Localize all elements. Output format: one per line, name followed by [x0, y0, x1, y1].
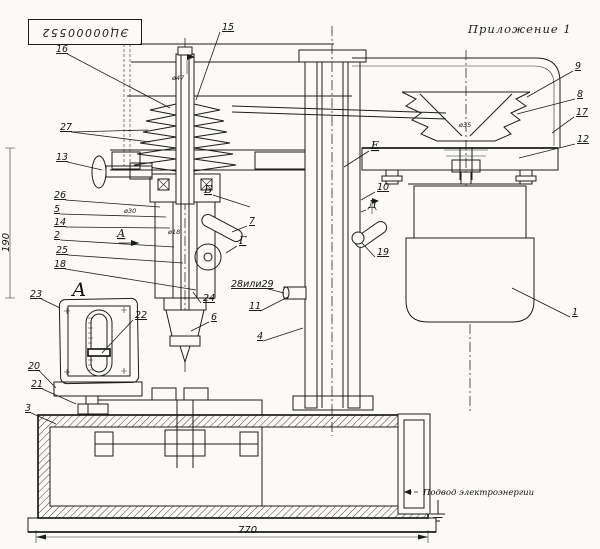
callout-28или29: 28или29: [231, 279, 284, 293]
svg-text:1: 1: [572, 307, 578, 318]
svg-text:26: 26: [54, 190, 66, 201]
svg-text:А: А: [70, 279, 86, 301]
svg-text:14: 14: [54, 217, 66, 228]
callout-14: 14: [54, 217, 170, 228]
callout-16: 16: [56, 44, 170, 108]
motor-shaft: [461, 172, 471, 184]
column-wall-left: [305, 62, 317, 408]
chuck-collar: [170, 336, 200, 346]
small-dimensions: ø47ø30ø18ø35: [123, 74, 471, 236]
svg-text:22: 22: [135, 310, 147, 321]
callout-2: 2: [54, 230, 174, 247]
callout-11: 11: [249, 297, 288, 312]
svg-text:4: 4: [257, 331, 263, 342]
svg-text:10: 10: [377, 182, 389, 193]
svg-text:9: 9: [575, 61, 581, 72]
callout-8: 8: [517, 89, 583, 114]
svg-text:3: 3: [25, 403, 31, 414]
svg-text:7: 7: [249, 216, 255, 227]
callout-26: 26: [54, 190, 160, 207]
technical-drawing-sheet: ЭЦ00000552 Приложение 1: [0, 0, 600, 549]
svg-text:27: 27: [60, 122, 72, 133]
gauge-stem: [86, 396, 98, 404]
electrical-input: Подвод электроэнергии: [398, 414, 534, 521]
callout-25: 25: [56, 245, 183, 263]
base-outline: [38, 415, 428, 518]
small-dim-ø30: ø30: [123, 207, 136, 215]
feed-handle: [200, 212, 244, 243]
side-lever: [92, 156, 152, 188]
svg-text:17: 17: [576, 107, 588, 118]
svg-text:2: 2: [54, 230, 60, 241]
left-dimension: 190: [1, 148, 15, 298]
svg-text:23: 23: [30, 289, 42, 300]
svg-text:8: 8: [577, 89, 583, 100]
foundation-plate: [28, 518, 436, 532]
svg-text:А: А: [116, 227, 125, 240]
callout-4: 4: [257, 328, 303, 342]
callout-15: 15: [196, 22, 234, 100]
svg-text:13: 13: [56, 152, 68, 163]
svg-text:Д: Д: [367, 198, 378, 211]
callout-23: 23: [30, 289, 60, 308]
drive-belt: [232, 106, 446, 119]
svg-text:16: 16: [56, 44, 68, 55]
drill-bit: [180, 346, 190, 362]
base-walls-hatch: [38, 415, 428, 518]
gauge-base: [54, 382, 142, 396]
column-cap: [299, 50, 366, 62]
svg-text:20: 20: [28, 361, 40, 372]
callout-17: 17: [552, 107, 588, 133]
view-letter-Д: Д: [361, 198, 378, 212]
svg-text:11: 11: [249, 301, 261, 312]
view-a-depth-gauge: [54, 298, 142, 414]
pulley-housing: [232, 50, 560, 186]
gauge-pointer: [88, 349, 110, 356]
motor-body: [406, 238, 534, 322]
svg-text:19: 19: [377, 247, 389, 258]
small-dim-ø47: ø47: [171, 74, 185, 82]
svg-text:6: 6: [211, 312, 217, 323]
svg-text:Б: Б: [203, 183, 212, 196]
svg-text:24: 24: [203, 293, 215, 304]
callout-27: 27: [60, 122, 150, 142]
power-supply-label: Подвод электроэнергии: [422, 488, 534, 498]
motor-ribbed-top: [414, 186, 526, 238]
view-letter-Б: Б: [203, 183, 250, 207]
cone-pulley-driven-left: [402, 92, 437, 141]
electrical-box: [398, 414, 430, 514]
machine-base: [28, 388, 436, 532]
cone-pulley-right: [194, 104, 236, 171]
svg-text:21: 21: [31, 379, 43, 390]
view-letter-А: А: [70, 279, 86, 301]
view-letter-А: А: [116, 227, 139, 246]
base-width-dimension: 770: [238, 525, 257, 536]
svg-text:Г: Г: [238, 234, 247, 247]
drilling-machine-assembly-drawing: Подвод электроэнергии 770 190: [0, 0, 600, 549]
svg-text:15: 15: [222, 22, 234, 33]
spindle-cap: [178, 47, 192, 55]
cone-pulley-driven-right: [495, 92, 530, 141]
chuck-body: [166, 310, 204, 336]
knurled-knob: [78, 404, 108, 414]
column: [283, 26, 389, 436]
electric-motor: [406, 172, 534, 412]
svg-text:Е: Е: [370, 139, 379, 152]
svg-text:18: 18: [54, 259, 66, 270]
bottom-dimension: 770: [36, 525, 428, 543]
small-dim-ø35: ø35: [458, 121, 471, 129]
base-gear: [165, 430, 205, 456]
svg-text:12: 12: [577, 134, 589, 145]
svg-text:5: 5: [54, 204, 60, 215]
small-dim-ø18: ø18: [167, 228, 180, 236]
feed-mechanism: [195, 212, 244, 270]
left-height-dimension: 190: [1, 233, 12, 252]
svg-text:28или29: 28или29: [231, 279, 274, 290]
gearbox-cover: [88, 400, 262, 415]
lever-knob: [92, 156, 106, 188]
svg-text:25: 25: [56, 245, 68, 256]
